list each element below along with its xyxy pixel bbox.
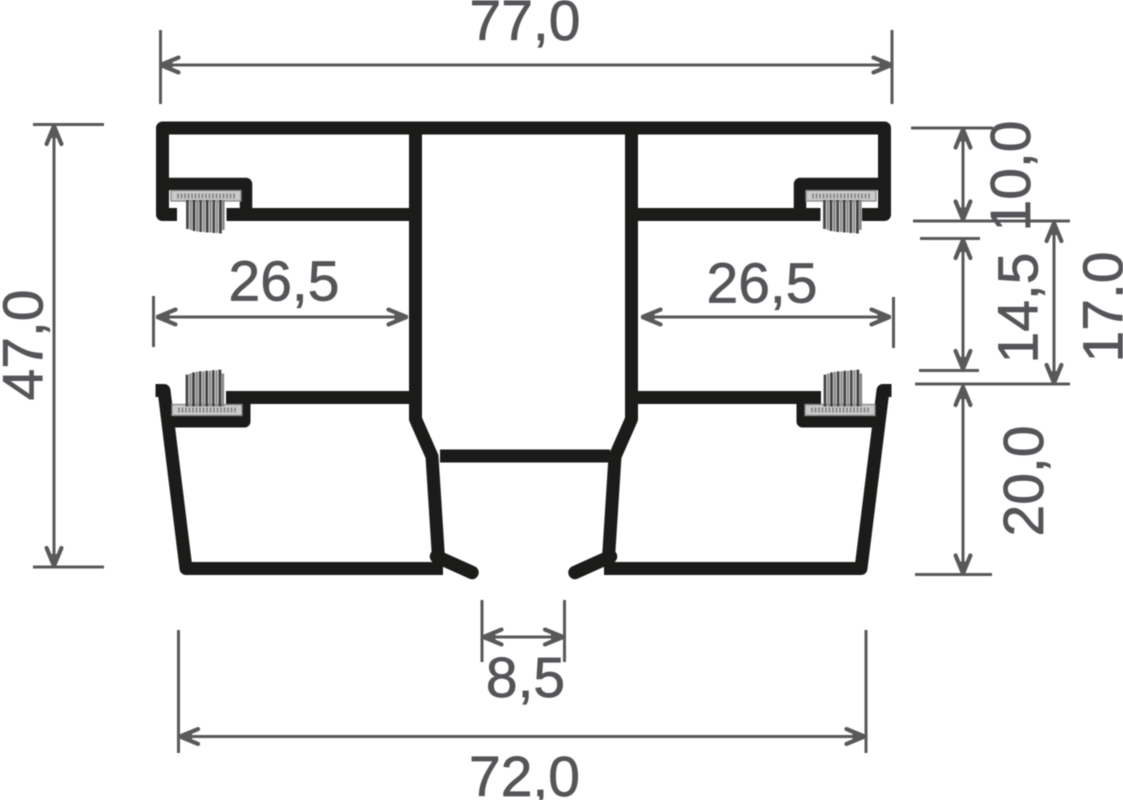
svg-text:10,0: 10,0 — [979, 121, 1043, 232]
svg-text:20,0: 20,0 — [992, 426, 1056, 537]
svg-text:47,0: 47,0 — [0, 290, 56, 401]
svg-text:14,5: 14,5 — [987, 253, 1051, 364]
svg-text:26,5: 26,5 — [229, 250, 340, 314]
svg-text:8,5: 8,5 — [486, 646, 565, 710]
svg-text:17,0: 17,0 — [1072, 252, 1123, 363]
svg-text:72,0: 72,0 — [469, 745, 580, 800]
svg-text:77,0: 77,0 — [470, 0, 581, 53]
svg-text:26,5: 26,5 — [707, 252, 818, 316]
